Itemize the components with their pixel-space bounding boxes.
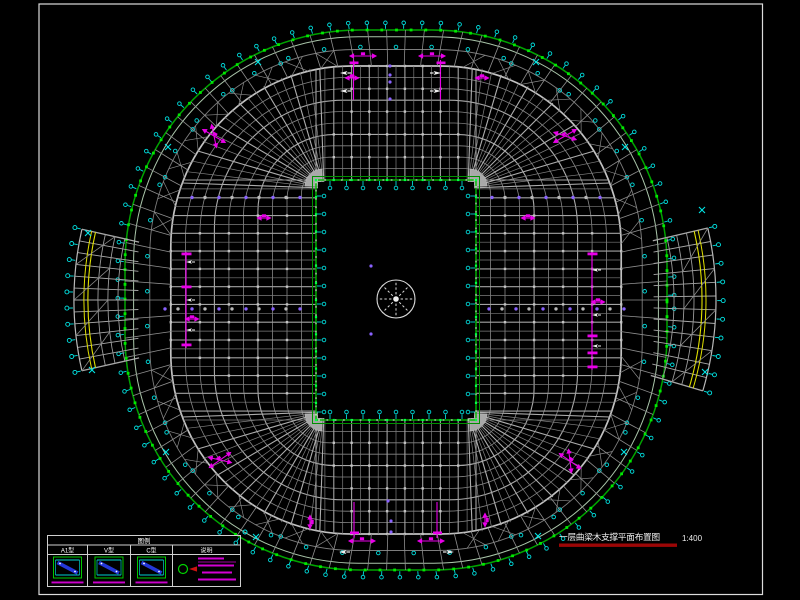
- svg-text:C型: C型: [146, 547, 156, 555]
- svg-text:V型: V型: [104, 547, 114, 555]
- svg-text:一层曲梁木支撑平面布置图: 一层曲梁木支撑平面布置图: [559, 531, 660, 542]
- svg-text:图例: 图例: [138, 536, 151, 545]
- svg-text:1:400: 1:400: [682, 534, 703, 543]
- svg-text:A1型: A1型: [61, 547, 74, 555]
- svg-text:说明: 说明: [200, 547, 212, 555]
